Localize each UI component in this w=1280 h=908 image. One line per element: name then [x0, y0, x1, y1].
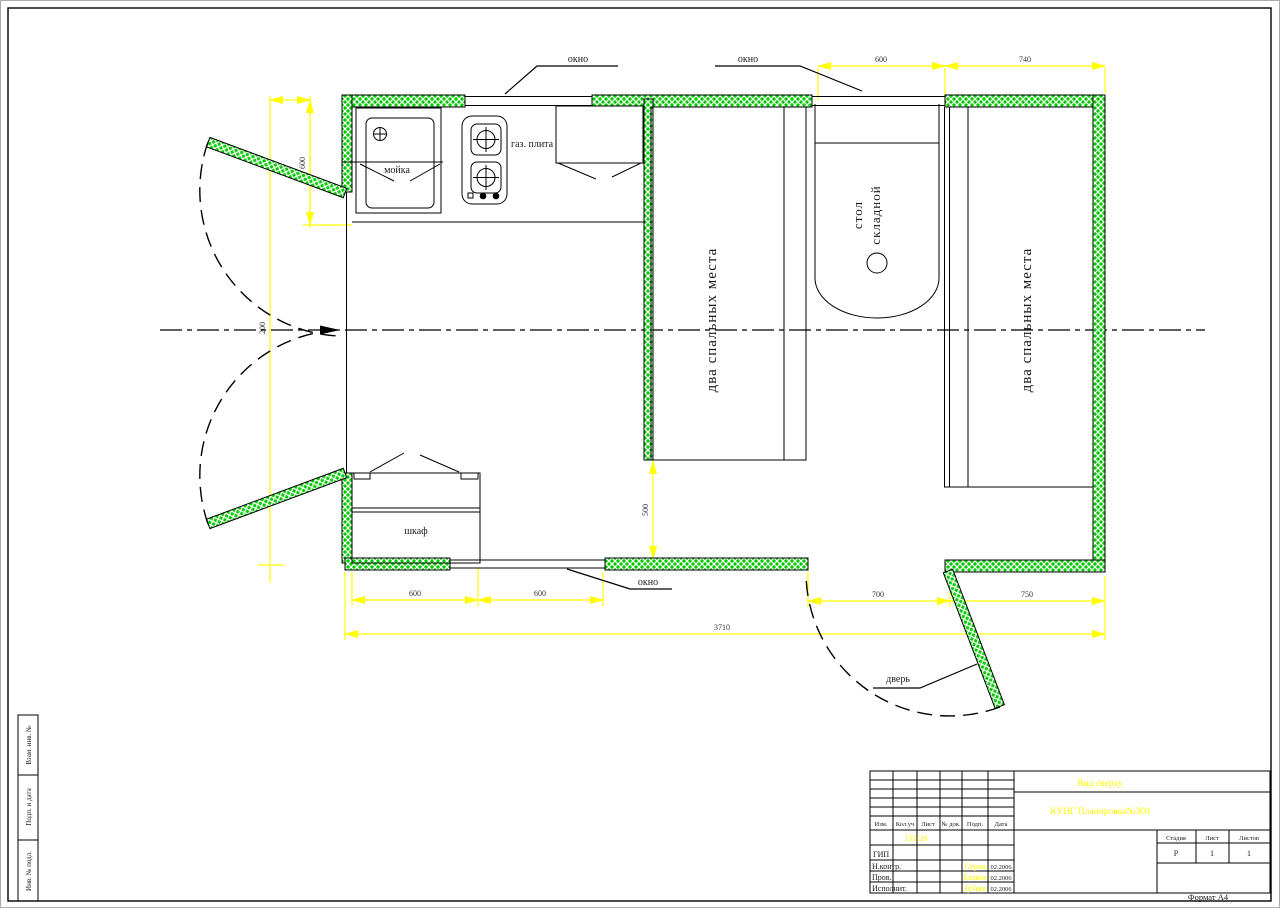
window-top-left-leader [505, 66, 618, 94]
tb-name-prov: Бляков [963, 873, 987, 882]
window-bottom-label: окно [638, 577, 658, 588]
wall-right [1093, 95, 1105, 572]
dim-left-600: 600 [298, 157, 307, 169]
tb-row-ispolnit: Исполнит. [872, 884, 907, 893]
closet [352, 453, 480, 563]
tb-date-ispolnit: 02.2006 [990, 886, 1012, 893]
window-top-right-leader [715, 66, 862, 91]
wall-bottom-right [945, 560, 1105, 572]
tb-header-podp: Подп. [967, 821, 984, 828]
stamp-cell-label: Взам. инв. № [25, 725, 33, 765]
dimension-lines [270, 66, 1105, 634]
tb-header-ndok: № док. [941, 821, 961, 828]
table-label-line1: стол [850, 201, 865, 229]
wall-bottom-mid [605, 558, 808, 570]
window-top-right-label: окно [738, 54, 758, 65]
stove-label: газ. плита [511, 139, 554, 150]
window-top-right-lines [812, 95, 945, 107]
tb-name-nkontr: Серов [965, 862, 986, 871]
door-leaf-bottom-right [943, 569, 1004, 708]
dim-mid-500: 500 [641, 504, 650, 516]
floor-plan-canvas: 600 740 600 200 500 600 600 700 750 3710 [0, 0, 1280, 908]
closet-label: шкаф [404, 526, 428, 537]
window-top-left-label: окно [568, 54, 588, 65]
dim-left-200: 200 [258, 322, 267, 334]
tb-date-prov: 02.2006 [990, 875, 1012, 882]
tb-header-izm: Изм. [875, 821, 888, 828]
door-swing-lower-left [200, 330, 338, 524]
stove-unit [462, 116, 507, 204]
title-block [870, 771, 1270, 893]
wall-bottom-left [345, 558, 450, 570]
door-swing-upper-left [200, 142, 338, 336]
doors [200, 137, 1005, 716]
tb-sheets-value: 1 [1247, 849, 1251, 858]
walls [342, 95, 1105, 572]
tb-sheet-label: Лист [1205, 835, 1219, 842]
tb-header-kol: Кол.уч [896, 821, 915, 828]
door-leaf-lower-left [206, 468, 346, 528]
tb-header-data: Дата [995, 821, 1008, 828]
tb-sheets-label: Листов [1239, 835, 1259, 842]
centerline [160, 326, 1205, 335]
tb-doc-number: 133-26 [905, 834, 928, 843]
window-top-left-lines [465, 95, 592, 107]
door-leaf-upper-left [206, 137, 346, 197]
tb-format: Формат А4 [1188, 892, 1229, 902]
tb-header-list: Лист [921, 821, 935, 828]
wall-cupboard [556, 106, 643, 179]
dim-bottom-750: 750 [1021, 590, 1033, 599]
dim-bottom-700: 700 [872, 590, 884, 599]
tb-sheet-value: 1 [1210, 849, 1214, 858]
dim-top-740: 740 [1019, 55, 1031, 64]
table-circle-icon [867, 253, 887, 273]
dim-overall-3710: 3710 [714, 623, 730, 632]
wall-left-lower [342, 473, 352, 563]
tb-stage-label: Стадия [1166, 835, 1186, 842]
door-label: дверь [886, 674, 910, 685]
wall-top-left [345, 95, 465, 107]
table-label-line2: складной [868, 185, 883, 244]
tb-name-ispolnit: Зубков [963, 884, 986, 893]
window-bottom-lines [450, 558, 605, 570]
tb-stage-value: Р [1174, 849, 1179, 858]
wall-top-mid [592, 95, 812, 107]
bed-left-label: два спальных места [704, 248, 720, 393]
bed-left [651, 107, 806, 460]
tb-row-nkontr: Н.контр. [872, 862, 901, 871]
dim-bottom-600a: 600 [409, 589, 421, 598]
windows [450, 95, 945, 570]
dim-top-600: 600 [875, 55, 887, 64]
tb-row-gip: ГИП [873, 850, 889, 859]
bed-right-label: два спальных места [1019, 248, 1035, 393]
tb-view-title: Вид сверху [1077, 779, 1123, 789]
tb-doc-title: КУНГ Планировка№300 [1050, 807, 1150, 817]
dimension-extension-lines [258, 68, 1105, 640]
wall-top-right [945, 95, 1105, 107]
tb-row-prov: Пров. [872, 873, 892, 882]
dim-bottom-600b: 600 [534, 589, 546, 598]
wall-left-upper [342, 95, 352, 192]
stamp-cell-label: Подп. и дата [25, 787, 33, 825]
wall-partition-mid [644, 99, 653, 460]
tb-date-nkontr: 02.2006 [990, 864, 1012, 871]
drawing-sheet: 600 740 600 200 500 600 600 700 750 3710 [0, 0, 1280, 908]
stamp-cell-label: Инв. № подл. [25, 851, 33, 891]
sink-label: мойка [384, 165, 410, 176]
